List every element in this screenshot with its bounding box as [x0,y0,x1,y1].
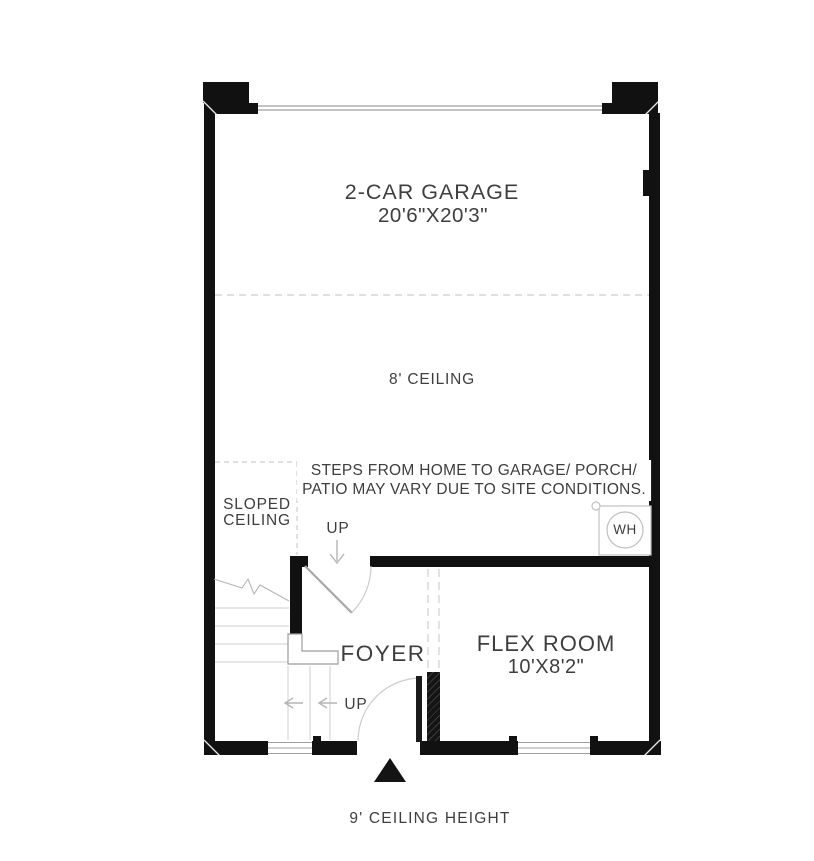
garage-dimensions: 20'6"X20'3" [378,205,488,228]
foyer-flex-opening-dashes [428,569,439,671]
water-heater-label: WH [613,523,637,538]
flex-room-label: FLEX ROOM [477,632,616,656]
stair-half-wall [288,634,338,664]
foyer-label: FOYER [340,642,425,667]
garage-ceiling-note: 8' CEILING [389,371,475,388]
flex-room-dimensions: 10'X8'2" [508,656,585,678]
ceiling-height-caption: 9' CEILING HEIGHT [349,810,510,827]
front-door-swing [358,676,422,742]
stairs-up-arrow-icon [330,540,344,563]
sloped-ceiling-note-line1: SLOPED [223,497,291,513]
site-conditions-note-line1: STEPS FROM HOME TO GARAGE/ PORCH/ [302,462,646,481]
plan-linework [0,0,814,861]
site-conditions-note-line2: PATIO MAY VARY DUE TO SITE CONDITIONS. [302,481,646,500]
entry-up-label: UP [344,696,367,713]
sloped-ceiling-note-line2: CEILING [223,513,291,529]
site-conditions-note: STEPS FROM HOME TO GARAGE/ PORCH/ PATIO … [297,460,651,501]
entry-up-arrows-icon [285,698,337,708]
window-right [518,740,590,756]
garage-door [258,106,602,110]
window-left [268,740,312,756]
floor-plan: 2-CAR GARAGE 20'6"X20'3" 8' CEILING STEP… [0,0,814,861]
front-entry-arrow-icon [374,758,406,782]
garage-label: 2-CAR GARAGE [345,181,519,205]
sloped-ceiling-note: SLOPED CEILING [223,497,291,529]
staircase [215,608,289,662]
stair-break-line [214,579,289,601]
stairs-up-label: UP [326,520,349,537]
front-door-opening [357,740,420,756]
interior-door-swing [305,566,371,613]
